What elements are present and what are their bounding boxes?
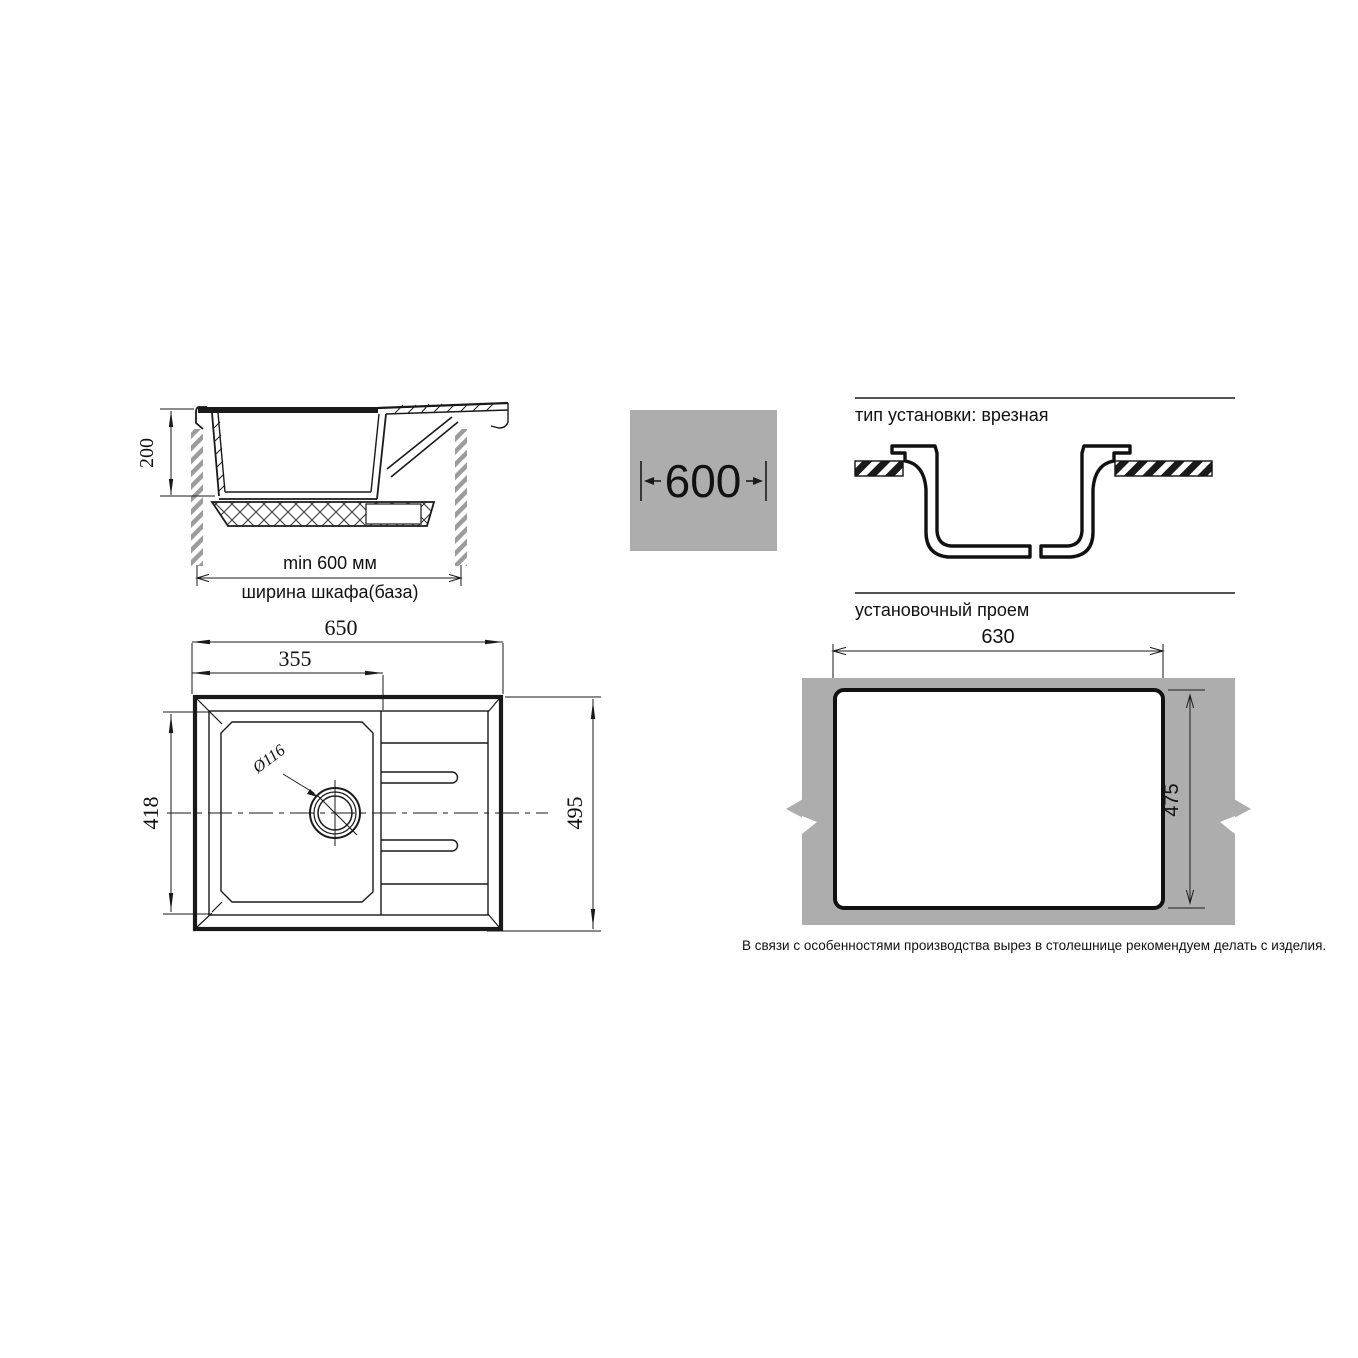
sink-technical-drawing: 200 min 600 мм ширина шкафа(база) 600 ти… (0, 0, 1358, 1358)
countertop-left-bar (855, 461, 903, 476)
cutout-title: установочный проем (855, 600, 1029, 620)
depth-label: 200 (136, 438, 158, 468)
min-width-label: min 600 мм (283, 553, 377, 573)
bowl-depth-label: 418 (138, 797, 163, 830)
sink-profile-left-half (892, 446, 1030, 557)
cabinet-width-label: ширина шкафа(база) (241, 582, 418, 602)
drain-diameter-label: Ø116 (248, 740, 289, 778)
installation-title: тип установки: врезная (855, 405, 1048, 425)
cutout-width-label: 630 (981, 626, 1014, 648)
drainboard-strut-2 (391, 422, 458, 477)
installation-section: тип установки: врезная (855, 398, 1235, 557)
cutout-hole (835, 690, 1163, 908)
cutout-section: установочный проем 630 475 В связи с ос (742, 593, 1326, 953)
break-mark-left (786, 799, 803, 818)
countertop-right-bar (1115, 461, 1212, 476)
bowl-left-wall-outer (212, 413, 219, 496)
cutout-height-label: 475 (1161, 783, 1183, 816)
cabinet-right-wall (455, 429, 467, 566)
bowl-width-label: 355 (279, 646, 312, 671)
bowl-width-dimension: 355 (192, 646, 383, 710)
cabinet-width-dimension: min 600 мм ширина шкафа(база) (197, 553, 461, 602)
drainboard-top (378, 403, 508, 408)
drainboard-groove-lower (381, 840, 458, 851)
overall-width-dimension: 650 (192, 615, 503, 694)
drainboard-groove-upper (381, 772, 458, 783)
drainboard-strut-1 (387, 417, 452, 469)
drain-outlet-box (366, 504, 421, 524)
break-mark-right (1234, 799, 1251, 818)
bowl-right-wall-inner (371, 414, 379, 492)
drain-diagonal-line (317, 795, 357, 835)
drain-diameter-callout: Ø116 (248, 740, 318, 797)
overall-width-label: 650 (325, 615, 358, 640)
overall-depth-dimension: 495 (487, 697, 601, 931)
depth-dimension: 200 (136, 409, 215, 496)
top-view-drawing: 650 355 (138, 615, 601, 931)
drawing-canvas: 200 min 600 мм ширина шкафа(база) 600 ти… (0, 0, 1358, 1358)
production-note: В связи с особенностями производства выр… (742, 938, 1326, 953)
badge-width-value: 600 (665, 455, 742, 507)
overall-depth-label: 495 (562, 797, 587, 830)
cabinet-left-wall (191, 429, 203, 566)
bowl-left-wall-inner (218, 413, 225, 492)
bowl-opening (221, 722, 373, 902)
side-view-drawing: 200 min 600 мм ширина шкафа(база) (136, 403, 508, 602)
drainboard-end-cap (491, 403, 508, 428)
width-badge: 600 (630, 410, 777, 551)
